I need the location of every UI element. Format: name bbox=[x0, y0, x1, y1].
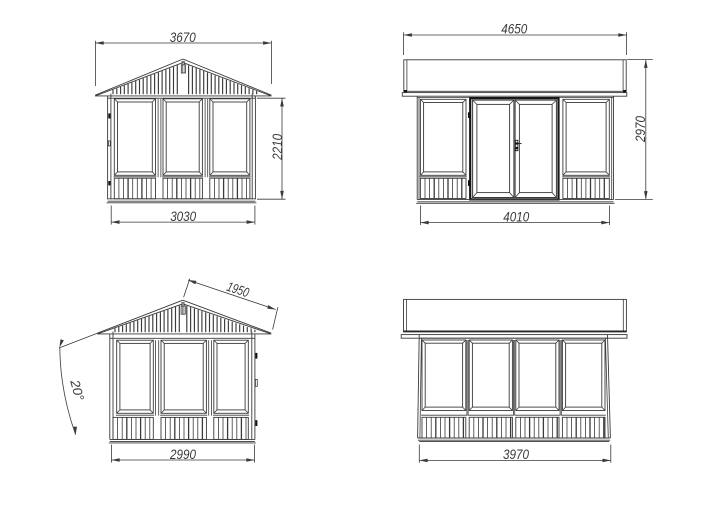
svg-text:3970: 3970 bbox=[503, 447, 529, 462]
svg-text:3670: 3670 bbox=[170, 30, 196, 45]
svg-text:2990: 2990 bbox=[169, 447, 196, 462]
svg-text:3030: 3030 bbox=[170, 209, 196, 224]
svg-text:2970: 2970 bbox=[633, 116, 648, 143]
svg-text:2210: 2210 bbox=[270, 133, 285, 160]
svg-text:4650: 4650 bbox=[501, 22, 527, 37]
svg-text:4010: 4010 bbox=[503, 209, 529, 224]
